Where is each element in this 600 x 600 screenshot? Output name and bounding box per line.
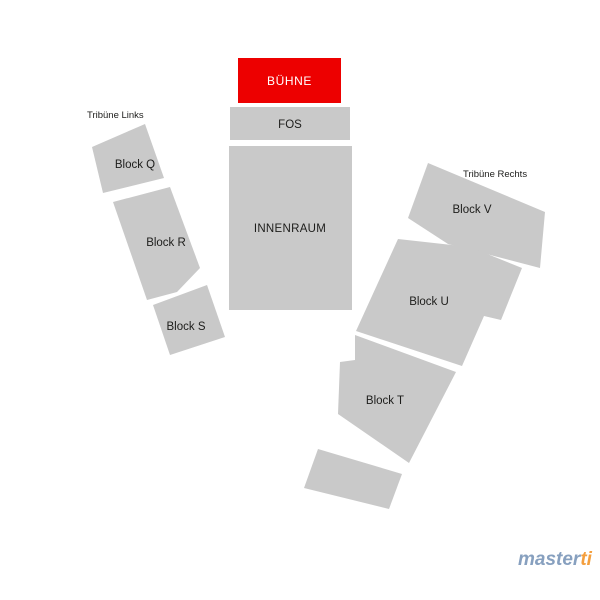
logo-text-ti: ti <box>580 549 592 570</box>
venue-seat-map: BÜHNE FOS INNENRAUM Tribüne Links Block … <box>0 0 600 600</box>
block-s-label: Block S <box>167 321 206 333</box>
block-t-label: Block T <box>366 395 404 407</box>
logo-text-master: master <box>518 549 580 570</box>
tribune-rechts-label: Tribüne Rechts <box>463 169 527 180</box>
block-v-label: Block V <box>453 204 492 216</box>
stage-label: BÜHNE <box>267 74 312 88</box>
block-r-label: Block R <box>146 237 186 249</box>
seat-map-svg: BÜHNE FOS INNENRAUM Tribüne Links Block … <box>0 0 600 600</box>
block-u-label: Block U <box>409 296 449 308</box>
block-q-label: Block Q <box>115 159 155 171</box>
tribune-links-label: Tribüne Links <box>87 110 144 121</box>
unlabeled-block <box>304 449 402 509</box>
masterticket-logo: masterti <box>518 549 592 571</box>
fos-label: FOS <box>278 119 302 131</box>
innenraum-label: INNENRAUM <box>254 223 326 235</box>
